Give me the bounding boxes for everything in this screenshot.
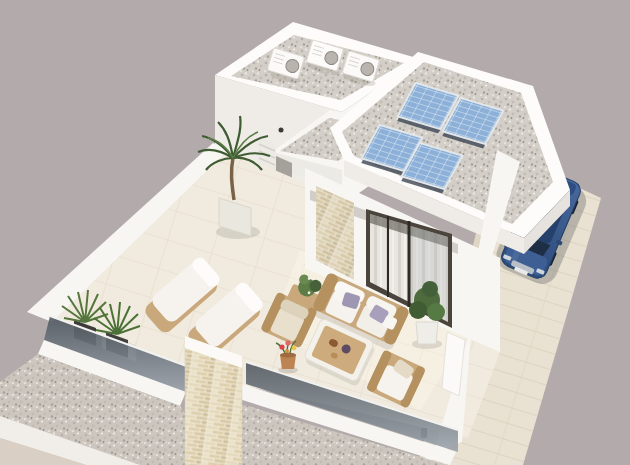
render-stage: [0, 0, 630, 465]
roof-fixture: [279, 128, 284, 133]
stone-pillar: [185, 336, 242, 465]
flower-yellow: [292, 346, 297, 351]
flower-pink: [285, 340, 290, 345]
bush-pot: [416, 322, 438, 344]
villa-render: [0, 0, 630, 465]
flower-orange: [285, 349, 289, 353]
flower-red: [279, 344, 284, 349]
